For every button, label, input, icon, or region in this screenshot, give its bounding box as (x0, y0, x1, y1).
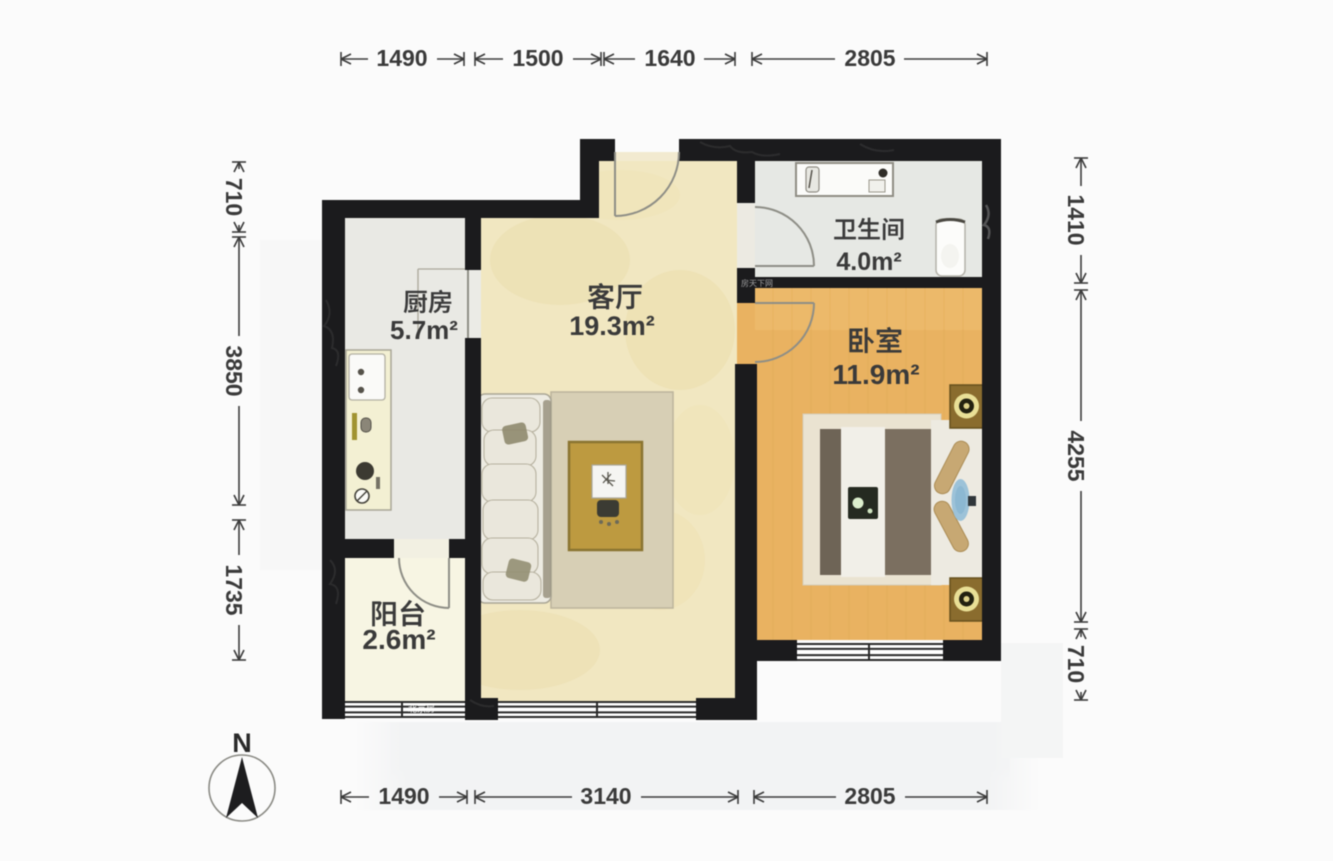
svg-text:1410: 1410 (1063, 194, 1089, 245)
svg-text:2805: 2805 (844, 783, 895, 809)
svg-text:N: N (232, 728, 252, 758)
svg-text:3140: 3140 (580, 783, 631, 809)
svg-text:北京房: 北京房 (408, 703, 435, 714)
svg-text:1640: 1640 (644, 45, 695, 71)
svg-text:1735: 1735 (221, 564, 247, 615)
svg-text:1500: 1500 (512, 45, 563, 71)
svg-text:3850: 3850 (221, 345, 247, 396)
svg-text:4255: 4255 (1063, 430, 1089, 481)
svg-text:19.3m²: 19.3m² (569, 311, 655, 341)
svg-text:1490: 1490 (378, 783, 429, 809)
svg-text:2805: 2805 (844, 45, 895, 71)
svg-text:1490: 1490 (376, 45, 427, 71)
svg-text:5.7m²: 5.7m² (390, 315, 458, 345)
svg-text:11.9m²: 11.9m² (832, 359, 919, 390)
svg-text:710: 710 (1063, 645, 1089, 683)
svg-text:710: 710 (221, 178, 247, 216)
svg-text:2.6m²: 2.6m² (362, 624, 435, 655)
svg-text:4.0m²: 4.0m² (836, 248, 901, 276)
svg-text:房天下网: 房天下网 (741, 278, 773, 288)
